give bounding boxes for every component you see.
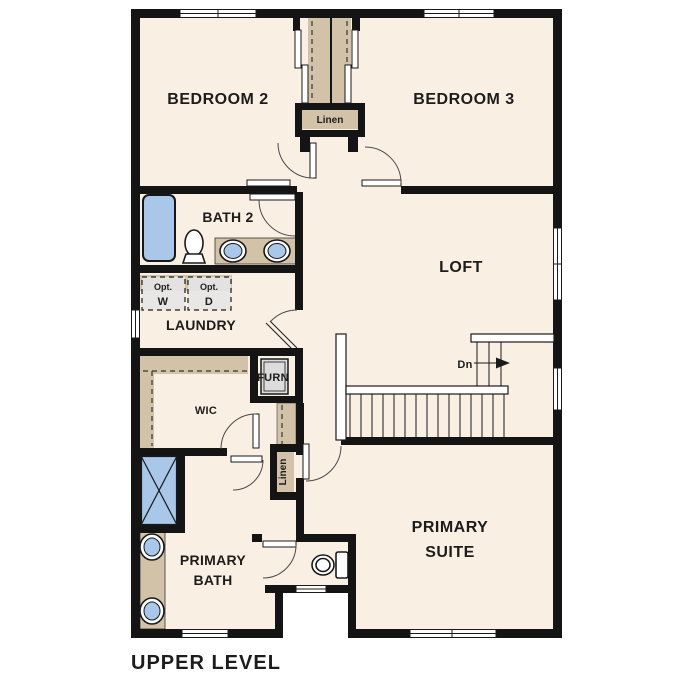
wall-wc-top-left (252, 534, 262, 542)
bath2-label: BATH 2 (202, 209, 253, 225)
wall-linen-lower-bottom (270, 492, 304, 500)
furn-label: FURN (257, 372, 289, 384)
primary-bath-door-leaf (231, 456, 262, 462)
page-title: UPPER LEVEL (131, 652, 281, 674)
wall-closet-stub-right (352, 18, 360, 31)
wall-closet-stub-left (293, 18, 300, 31)
window-primary-suite-bottom (410, 630, 496, 638)
linen-upper-label: Linen (317, 115, 344, 126)
bedroom2-door-closed-leaf (247, 180, 290, 186)
wall-linen-upper-top (295, 103, 365, 110)
wall-stairs-suite (341, 437, 553, 445)
window-laundry-left (132, 310, 140, 338)
wall-vestibule-stub-right (348, 137, 358, 152)
dryer-letter: D (205, 296, 213, 308)
linen-chase (277, 403, 296, 450)
tub-icon (143, 195, 175, 261)
wall-hall-upper-a (295, 192, 303, 265)
floorplan-svg: BEDROOM 2 BEDROOM 3 Linen BATH 2 LOFT LA… (0, 0, 687, 687)
window-bedroom2-top (180, 10, 256, 18)
wic-label: WIC (195, 405, 217, 417)
bath2-door-leaf (250, 194, 295, 200)
bedroom2-closet (308, 18, 330, 103)
stair-railing-run (346, 386, 508, 394)
wall-vestibule-stub-left (300, 137, 310, 152)
bedroom3-label: BEDROOM 3 (413, 91, 514, 108)
sink-icon (220, 240, 246, 262)
window-loft-right (554, 228, 562, 300)
primary-suite-label-2: SUITE (425, 544, 475, 561)
bedroom3-door-leaf (362, 180, 401, 186)
washer-letter: W (158, 296, 169, 308)
sink-icon (140, 598, 164, 624)
wall-bedroom3-bottom (401, 186, 553, 194)
wall-hall-mid (295, 348, 303, 403)
wic-door-leaf (253, 414, 259, 448)
wall-linen-upper-bottom (295, 130, 365, 137)
wc-door-leaf (263, 541, 296, 547)
window-wc-bottom (296, 586, 326, 593)
wall-linen-lower-top (270, 444, 296, 452)
wall-exterior-right (553, 9, 562, 638)
wall-hall-lower (296, 478, 304, 534)
shower-icon (141, 456, 177, 525)
wall-wic-bottom (131, 448, 227, 456)
primary-suite-door-leaf (303, 444, 309, 479)
stairs-dn-label: Dn (457, 359, 472, 371)
wall-shower-bottom (133, 525, 185, 533)
wall-hall-chase (296, 403, 304, 440)
loft-railing (471, 334, 554, 342)
wall-bedroom2-bottom (140, 186, 297, 194)
sink-icon (264, 240, 290, 262)
wall-wc-top-right (296, 534, 356, 542)
bedroom3-closet-slider (345, 65, 351, 103)
closet-divider (330, 18, 332, 103)
window-bedroom3-top (424, 10, 494, 18)
primary-bath-label-2: BATH (193, 572, 232, 588)
loft-label: LOFT (439, 259, 483, 276)
window-stair-landing-right (554, 368, 562, 410)
sink-icon (140, 534, 164, 560)
wall-laundry-wic (140, 348, 303, 356)
window-primary-bath-bottom (182, 630, 228, 638)
opt-dryer-label: Opt. (200, 282, 218, 292)
floorplan-page: BEDROOM 2 BEDROOM 3 Linen BATH 2 LOFT LA… (0, 0, 687, 687)
laundry-label: LAUNDRY (166, 317, 236, 333)
wall-bath2-laundry (140, 265, 303, 273)
opt-washer-label: Opt. (154, 282, 172, 292)
bedroom2-door-leaf (310, 143, 316, 178)
wall-hall-upper-b (295, 273, 303, 310)
bedroom2-closet-slider (295, 30, 301, 68)
wall-shower-right (177, 456, 185, 533)
stair-railing-left (336, 334, 346, 440)
primary-suite-label-1: PRIMARY (412, 519, 489, 536)
toilet-icon (183, 230, 205, 263)
bedroom2-closet-slider (302, 65, 308, 103)
linen-lower-label: Linen (278, 459, 289, 486)
bedroom3-closet-slider (352, 30, 358, 68)
bedroom2-label: BEDROOM 2 (167, 91, 268, 108)
footprint-notch (283, 593, 348, 638)
wall-wc-right (348, 534, 356, 585)
primary-bath-label-1: PRIMARY (180, 552, 247, 568)
